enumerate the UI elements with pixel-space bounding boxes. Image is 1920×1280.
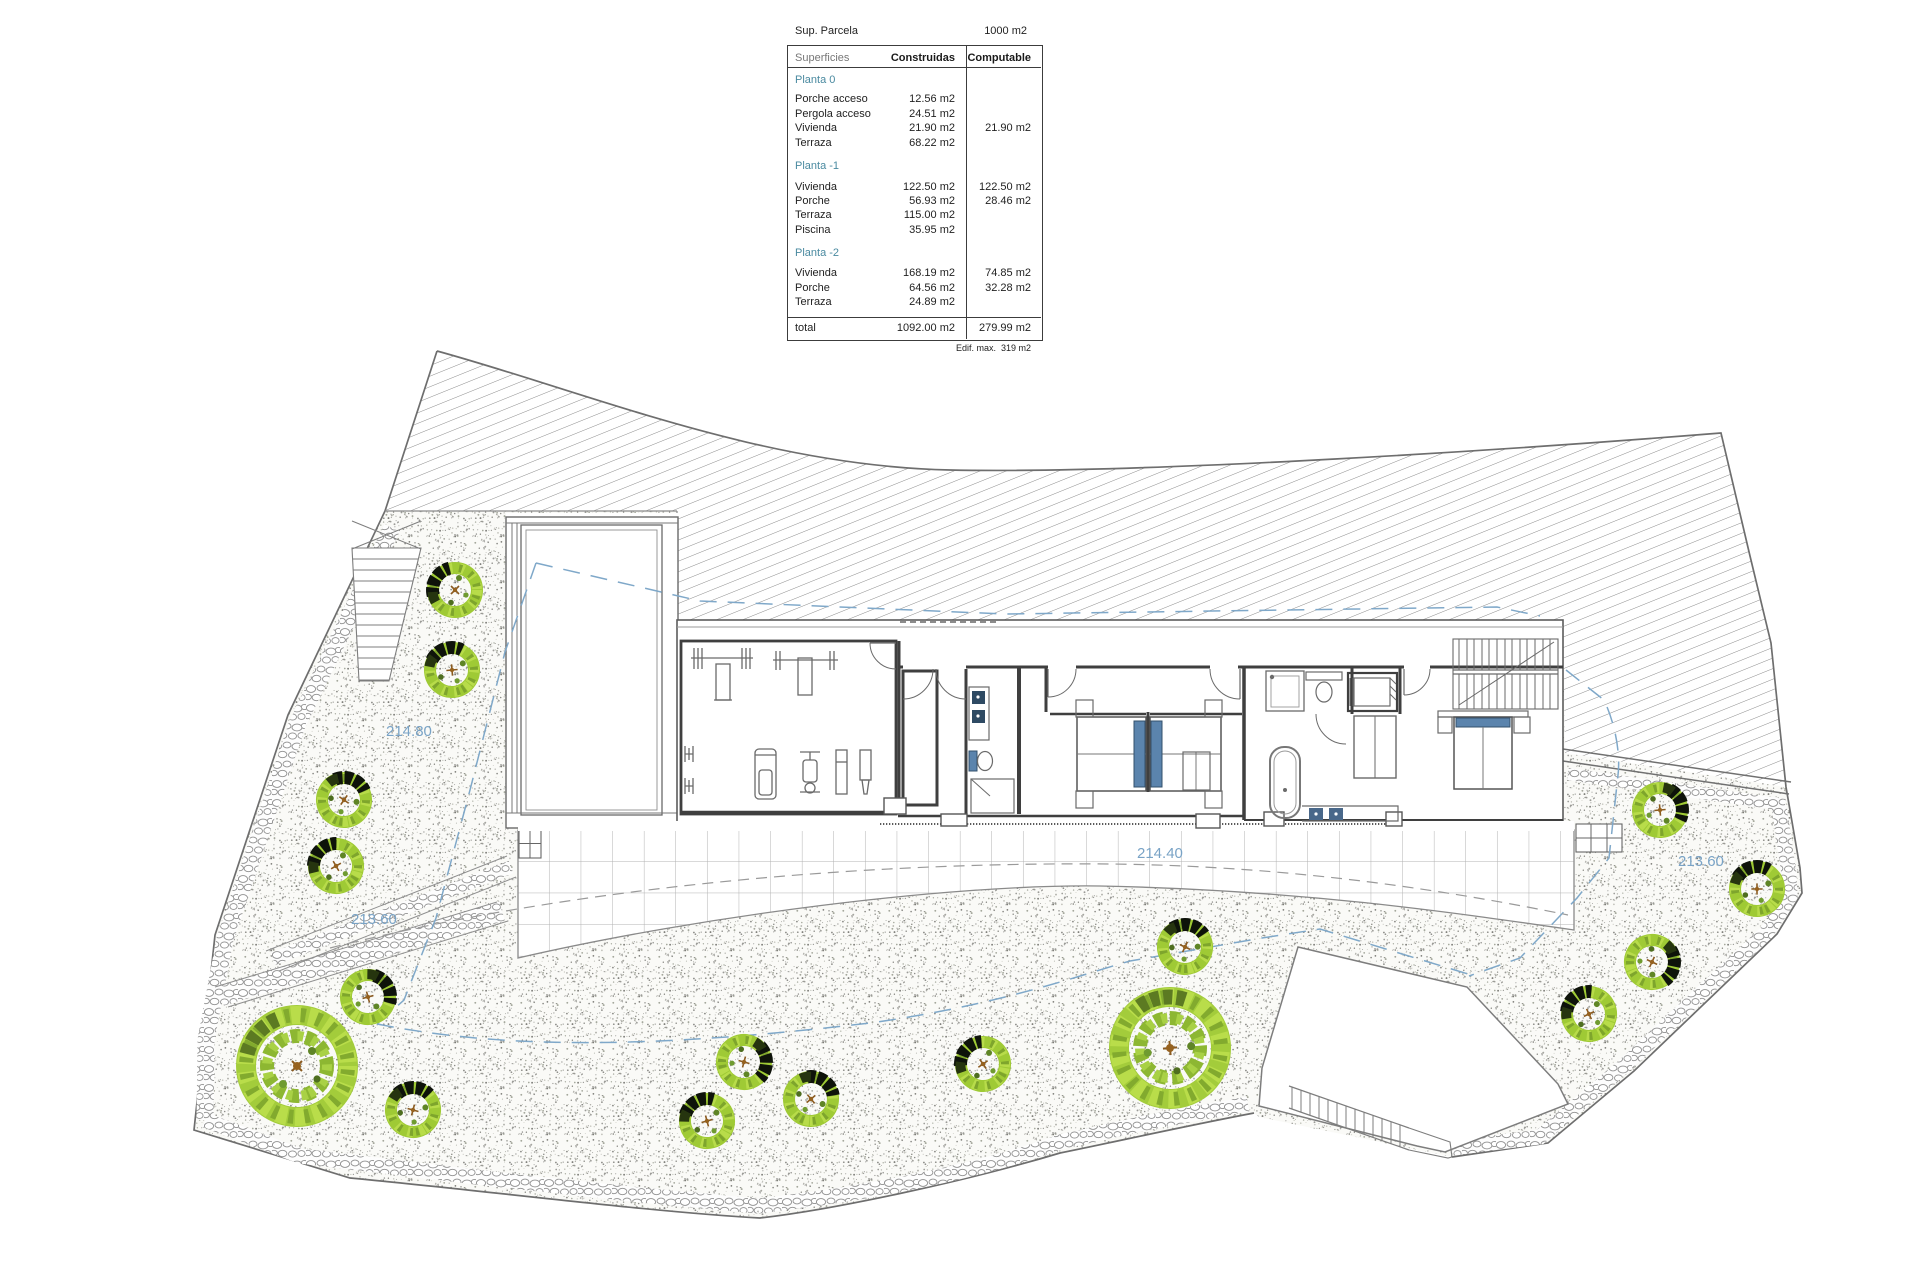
svg-text:214.40: 214.40 [1137,845,1183,862]
svg-text:213.60: 213.60 [351,911,397,928]
svg-text:213.60: 213.60 [1678,853,1724,870]
svg-text:214.80: 214.80 [386,723,432,740]
